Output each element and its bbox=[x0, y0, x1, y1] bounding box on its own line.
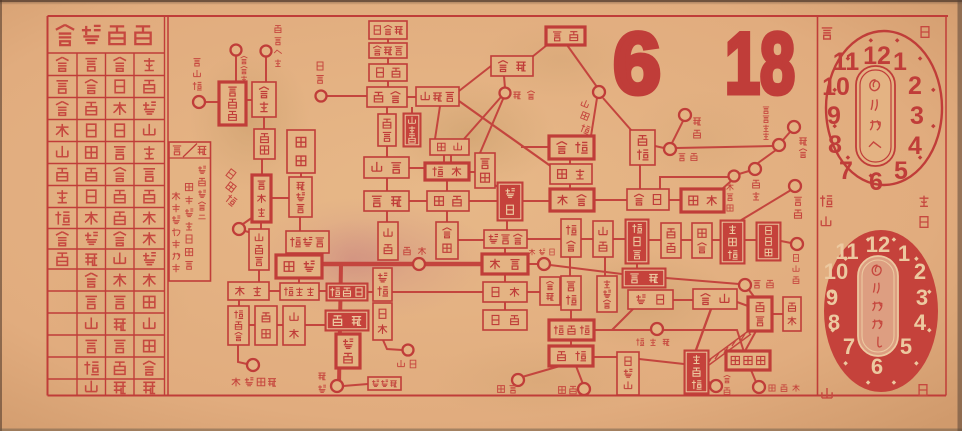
svg-text:18: 18 bbox=[725, 16, 795, 112]
svg-text:11: 11 bbox=[833, 48, 860, 76]
svg-text:9: 9 bbox=[827, 102, 841, 130]
svg-text:6: 6 bbox=[869, 168, 883, 196]
svg-text:6: 6 bbox=[613, 16, 661, 112]
svg-text:11: 11 bbox=[835, 239, 858, 264]
svg-text:5: 5 bbox=[900, 334, 912, 359]
svg-text:1: 1 bbox=[893, 48, 907, 76]
svg-text:2: 2 bbox=[908, 72, 922, 100]
svg-text:3: 3 bbox=[910, 102, 924, 130]
svg-text:3: 3 bbox=[916, 285, 928, 310]
svg-text:2: 2 bbox=[914, 259, 926, 284]
svg-text:7: 7 bbox=[839, 157, 853, 185]
svg-text:7: 7 bbox=[843, 334, 855, 359]
svg-text:10: 10 bbox=[822, 73, 850, 101]
svg-text:9: 9 bbox=[826, 285, 838, 310]
svg-text:1: 1 bbox=[898, 241, 910, 266]
svg-text:6: 6 bbox=[871, 354, 883, 379]
svg-text:12: 12 bbox=[866, 232, 890, 257]
svg-text:5: 5 bbox=[894, 157, 908, 185]
svg-text:8: 8 bbox=[828, 310, 840, 335]
svg-text:8: 8 bbox=[828, 131, 842, 159]
svg-text:4: 4 bbox=[914, 310, 927, 335]
